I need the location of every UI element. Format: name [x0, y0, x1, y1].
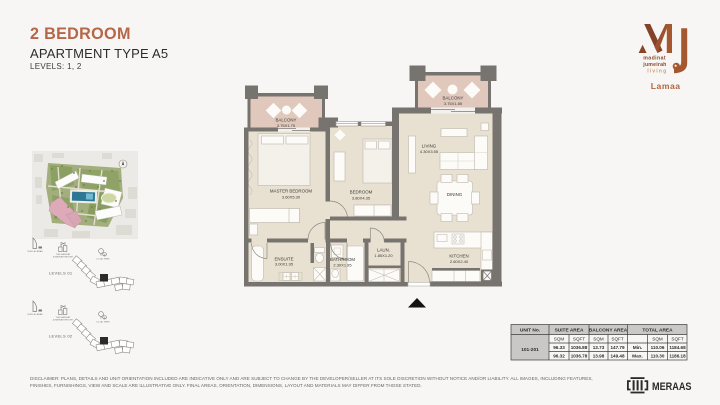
svg-text:SQFT: SQFT	[611, 336, 623, 341]
svg-text:SQFT: SQFT	[573, 336, 585, 341]
svg-text:living: living	[647, 68, 667, 74]
svg-text:SQFT: SQFT	[671, 336, 683, 341]
svg-text:3.60X5.30: 3.60X5.30	[282, 195, 301, 200]
svg-text:147.79: 147.79	[610, 345, 624, 350]
svg-text:THE MADINAT: THE MADINAT	[56, 253, 71, 256]
svg-text:LAUN.: LAUN.	[377, 248, 390, 253]
svg-text:4.30X3.55: 4.30X3.55	[420, 149, 439, 154]
svg-text:BEDROOM: BEDROOM	[350, 190, 373, 195]
svg-text:3.00X1.95: 3.00X1.95	[275, 262, 294, 267]
svg-text:1184.68: 1184.68	[669, 345, 686, 350]
svg-text:110.30: 110.30	[651, 354, 665, 359]
svg-text:madinat: madinat	[643, 56, 666, 62]
svg-text:JUMEIRAH RESORT: JUMEIRAH RESORT	[53, 319, 75, 322]
svg-text:BURJ AL ARAB: BURJ AL ARAB	[27, 250, 43, 253]
svg-text:BALCONY AREA: BALCONY AREA	[589, 327, 628, 333]
svg-text:THE MADINAT: THE MADINAT	[56, 316, 71, 319]
svg-text:BALCONY: BALCONY	[276, 118, 297, 123]
svg-text:3.75X1.85: 3.75X1.85	[444, 101, 463, 106]
svg-text:1036.88: 1036.88	[571, 345, 588, 350]
svg-text:SQM: SQM	[554, 336, 565, 341]
svg-text:SUITE AREA: SUITE AREA	[555, 327, 584, 333]
svg-text:LEVELS 02: LEVELS 02	[49, 334, 73, 339]
svg-text:3.75X1.75: 3.75X1.75	[277, 123, 296, 128]
svg-text:96.33: 96.33	[553, 345, 565, 350]
svg-text:1036.78: 1036.78	[571, 354, 588, 359]
svg-text:TOTAL AREA: TOTAL AREA	[642, 327, 673, 333]
svg-text:101-201: 101-201	[521, 347, 539, 353]
svg-text:LOCAL PARK: LOCAL PARK	[96, 321, 110, 324]
svg-text:MERAAS: MERAAS	[652, 381, 692, 393]
svg-text:BATHROOM: BATHROOM	[330, 257, 355, 262]
svg-text:1.85X1.20: 1.85X1.20	[374, 253, 393, 258]
svg-text:JUMEIRAH RESORT: JUMEIRAH RESORT	[53, 256, 75, 259]
svg-text:Min.: Min.	[633, 345, 643, 351]
svg-text:SQM: SQM	[652, 336, 663, 341]
svg-text:UNIT No.: UNIT No.	[520, 327, 540, 333]
svg-text:149.48: 149.48	[610, 354, 624, 359]
svg-text:BALCONY: BALCONY	[443, 96, 464, 101]
svg-text:LOCAL PARK: LOCAL PARK	[96, 258, 110, 261]
svg-text:DINING: DINING	[447, 192, 463, 197]
svg-text:KITCHEN: KITCHEN	[449, 254, 468, 259]
svg-text:Lamaa: Lamaa	[651, 81, 681, 91]
svg-text:BURJ AL ARAB: BURJ AL ARAB	[27, 313, 43, 316]
svg-text:MASTER BEDROOM: MASTER BEDROOM	[270, 189, 313, 194]
svg-text:2.30X1.95: 2.30X1.95	[333, 263, 352, 268]
svg-text:jumeirah: jumeirah	[642, 62, 666, 68]
svg-text:LEVELS 01: LEVELS 01	[49, 271, 73, 276]
svg-text:3.80X4.35: 3.80X4.35	[352, 196, 371, 201]
svg-text:96.32: 96.32	[553, 354, 565, 359]
svg-text:2.60X2.40: 2.60X2.40	[450, 259, 469, 264]
svg-text:Max.: Max.	[632, 354, 643, 360]
svg-text:SQM: SQM	[593, 336, 604, 341]
svg-text:13.73: 13.73	[593, 345, 605, 350]
svg-text:LIVING: LIVING	[422, 144, 437, 149]
svg-text:13.98: 13.98	[593, 354, 605, 359]
svg-text:110.06: 110.06	[651, 345, 665, 350]
svg-text:1186.18: 1186.18	[669, 354, 686, 359]
